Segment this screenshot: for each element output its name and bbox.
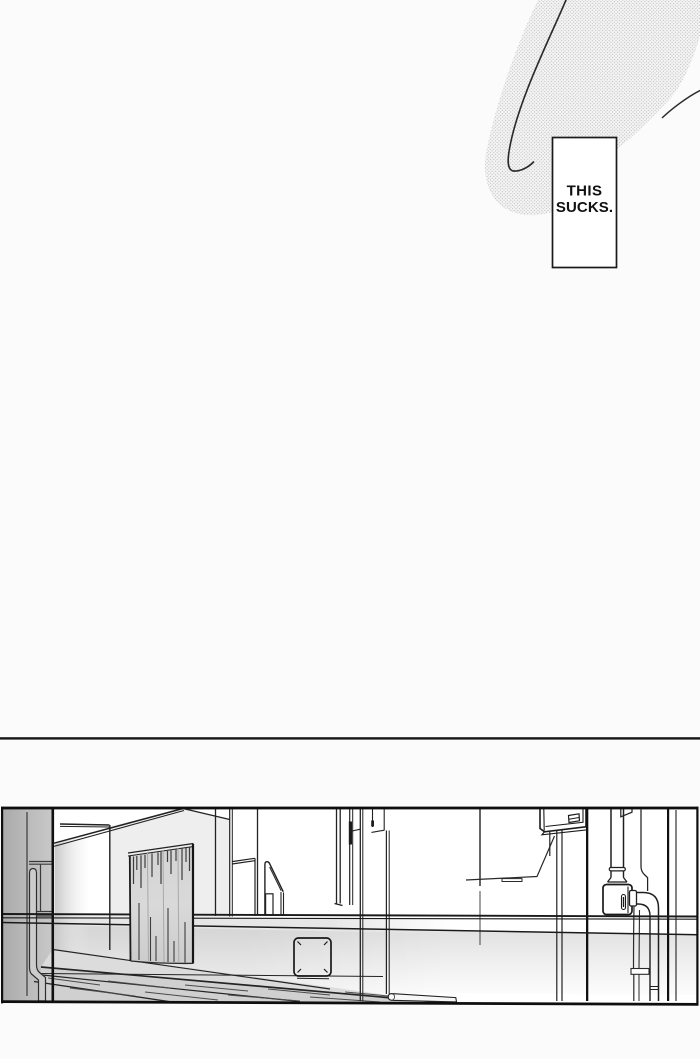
svg-text:SUCKS.: SUCKS.	[556, 199, 613, 216]
svg-text:THIS: THIS	[567, 183, 603, 200]
